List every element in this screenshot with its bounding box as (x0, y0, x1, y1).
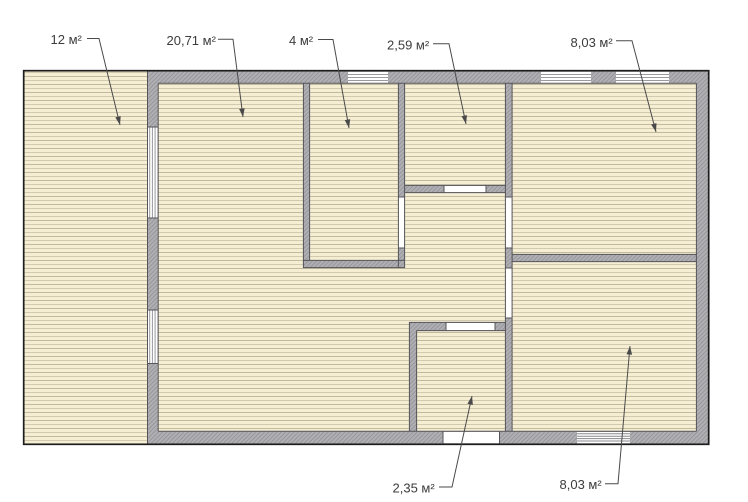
svg-text:8,03 м²: 8,03 м² (571, 35, 614, 50)
svg-text:12 м²: 12 м² (51, 32, 83, 47)
svg-text:2,59 м²: 2,59 м² (387, 38, 430, 53)
svg-text:8,03 м²: 8,03 м² (560, 477, 603, 492)
svg-text:4 м²: 4 м² (289, 33, 314, 48)
svg-text:2,35 м²: 2,35 м² (393, 481, 436, 496)
svg-text:20,71 м²: 20,71 м² (167, 33, 217, 48)
